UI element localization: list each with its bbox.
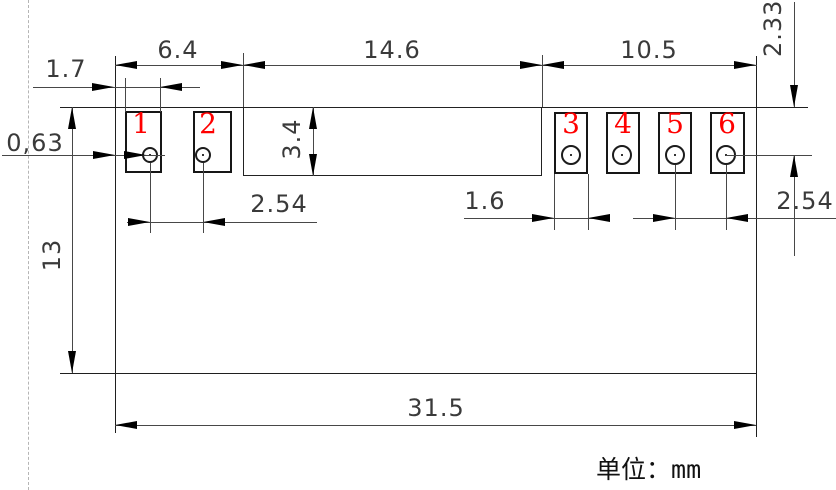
dim-label-left-group-width: 6.4 <box>148 38 208 62</box>
dim-label-hole-offset: 0,63 <box>4 131 66 155</box>
hole-4-center-mark <box>621 154 623 156</box>
arrowhead <box>790 85 798 107</box>
arrowhead <box>243 61 265 69</box>
arrowhead <box>653 214 675 222</box>
pin-number-2: 2 <box>193 110 223 138</box>
arrowhead <box>115 61 137 69</box>
extension-line <box>72 107 73 373</box>
dim-label-edge-to-hole: 2.33 <box>761 1 785 57</box>
unit-label-prefix: 单位： <box>596 455 671 484</box>
arrowhead <box>203 218 225 226</box>
extension-line <box>125 78 126 112</box>
arrowhead <box>734 61 756 69</box>
arrowhead <box>309 154 317 176</box>
dim-label-pad3-width: 1.6 <box>462 189 508 213</box>
pin-number-6: 6 <box>712 110 742 138</box>
arrowhead <box>790 155 798 177</box>
arrowhead <box>93 151 115 159</box>
arrowhead <box>128 218 150 226</box>
pin-number-1: 1 <box>126 110 156 138</box>
body-outline-left <box>115 56 116 433</box>
dim-label-body-height: 13 <box>40 230 64 280</box>
dim-label-center-width: 14.6 <box>361 38 423 62</box>
pin-number-5: 5 <box>660 110 690 138</box>
dim-label-total-width: 31.5 <box>405 396 467 420</box>
arrowhead <box>68 351 76 373</box>
technical-drawing: 1 2 3 4 5 6 <box>0 0 836 490</box>
pin-number-3: 3 <box>556 110 586 138</box>
hole-2-center-mark <box>202 154 204 156</box>
arrowhead <box>532 214 554 222</box>
dim-label-right-group-width: 10.5 <box>618 38 680 62</box>
unit-label-value: mm <box>671 455 701 484</box>
extension-line <box>675 165 676 230</box>
arrowhead <box>68 107 76 129</box>
arrowhead <box>309 107 317 129</box>
body-outline-bottom <box>60 373 756 374</box>
arrowhead <box>221 61 243 69</box>
arrowhead <box>124 151 146 159</box>
body-outline-right <box>756 56 757 437</box>
arrowhead <box>542 61 564 69</box>
arrowhead <box>726 214 748 222</box>
arrowhead <box>520 61 542 69</box>
dimension-line-31.5 <box>115 425 756 426</box>
pin-number-4: 4 <box>608 110 638 138</box>
arrowhead <box>734 421 756 429</box>
arrowhead <box>92 83 114 91</box>
arrowhead <box>160 83 182 91</box>
hole-3-center-mark <box>570 154 572 156</box>
dim-label-center-depth: 3.4 <box>280 114 304 164</box>
arrowhead <box>588 214 610 222</box>
dim-label-right-pitch: 2.54 <box>774 189 836 213</box>
extension-line <box>554 174 555 230</box>
hole-5-center-mark <box>674 154 676 156</box>
arrowhead <box>115 421 137 429</box>
dimension-line-top <box>115 65 757 66</box>
unit-label: 单位：mm <box>596 456 701 484</box>
dim-label-left-pitch: 2.54 <box>248 192 310 216</box>
dim-label-pad1-width: 1.7 <box>40 57 92 81</box>
centerline-dashed <box>28 0 29 490</box>
hole-center-line-right <box>726 155 812 156</box>
